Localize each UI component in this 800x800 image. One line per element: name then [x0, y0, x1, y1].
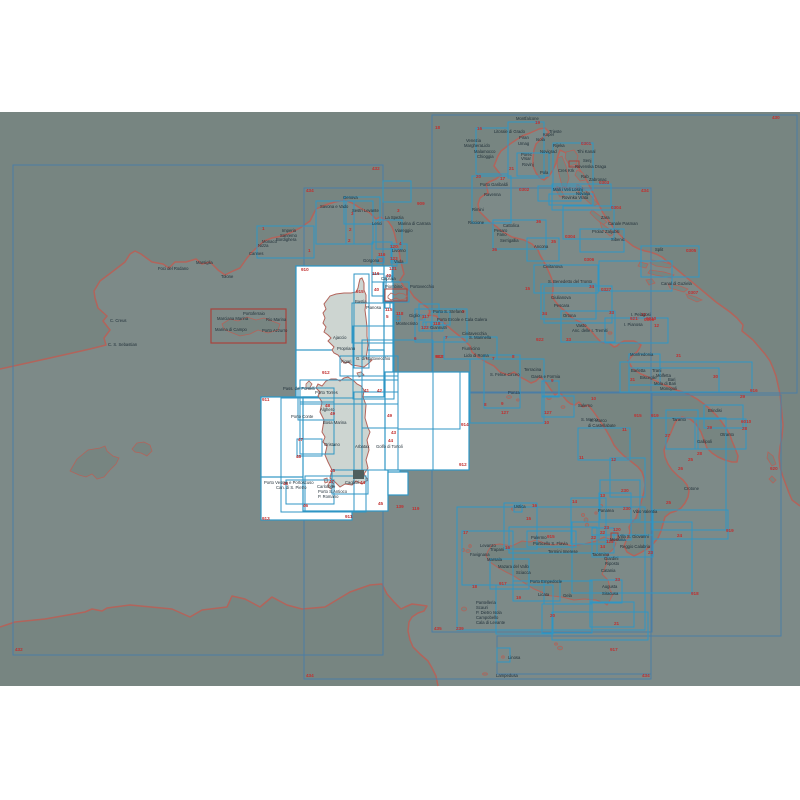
svg-text:432: 432 — [372, 166, 380, 171]
svg-text:Porto S. Stefano: Porto S. Stefano — [433, 309, 464, 314]
svg-text:434: 434 — [641, 188, 649, 193]
svg-text:Ortona: Ortona — [563, 313, 576, 318]
svg-text:Giglio: Giglio — [409, 313, 420, 318]
svg-text:45: 45 — [330, 468, 336, 473]
svg-text:912: 912 — [322, 370, 330, 375]
svg-text:915: 915 — [356, 289, 364, 294]
svg-text:Lampedusa: Lampedusa — [496, 673, 519, 678]
svg-text:11: 11 — [622, 427, 627, 432]
svg-text:17: 17 — [463, 530, 469, 535]
svg-text:42: 42 — [377, 388, 383, 393]
svg-text:Figari: Figari — [341, 359, 352, 364]
svg-text:Riposto: Riposto — [605, 561, 620, 566]
svg-text:Levanzo: Levanzo — [480, 543, 497, 548]
svg-text:911: 911 — [262, 397, 270, 402]
svg-text:Ancona: Ancona — [534, 244, 549, 249]
svg-text:44: 44 — [360, 480, 366, 485]
svg-text:Canal di Guziela: Canal di Guziela — [661, 281, 692, 286]
svg-text:Piombino: Piombino — [385, 284, 403, 289]
svg-text:20: 20 — [476, 174, 482, 179]
svg-text:0305: 0305 — [686, 248, 697, 253]
svg-text:Gallipoli: Gallipoli — [697, 439, 712, 444]
svg-text:Bisceglie: Bisceglie — [640, 375, 657, 380]
svg-text:18: 18 — [472, 584, 478, 589]
svg-text:Novigrad: Novigrad — [540, 149, 557, 154]
svg-text:26: 26 — [678, 466, 684, 471]
svg-text:Genova: Genova — [343, 195, 358, 200]
svg-text:7: 7 — [445, 335, 448, 340]
svg-text:230: 230 — [623, 506, 631, 511]
svg-text:48: 48 — [296, 454, 302, 459]
svg-text:0302: 0302 — [519, 187, 530, 192]
svg-text:913: 913 — [262, 516, 270, 521]
svg-text:0304: 0304 — [565, 234, 576, 239]
svg-text:Giulianova: Giulianova — [551, 295, 571, 300]
svg-text:Marina di Campo: Marina di Campo — [215, 327, 248, 332]
svg-text:Porto Azzurro: Porto Azzurro — [262, 328, 288, 333]
svg-text:20: 20 — [550, 613, 556, 618]
svg-text:Rijeka: Rijeka — [553, 143, 565, 148]
svg-text:0327: 0327 — [601, 287, 612, 292]
svg-text:17: 17 — [500, 176, 506, 181]
svg-text:I. Pelagosi: I. Pelagosi — [631, 312, 651, 317]
svg-text:Porto Torres: Porto Torres — [315, 390, 338, 395]
svg-text:Vada: Vada — [394, 259, 404, 264]
svg-text:Porto Garibaldi: Porto Garibaldi — [480, 182, 508, 187]
svg-text:122: 122 — [421, 325, 429, 330]
svg-text:0301: 0301 — [581, 141, 592, 146]
svg-text:Gorgona: Gorgona — [363, 258, 380, 263]
svg-text:G. di Portovecchio: G. di Portovecchio — [356, 356, 391, 361]
svg-text:27: 27 — [665, 433, 671, 438]
svg-text:Rovinka Vrata: Rovinka Vrata — [562, 195, 589, 200]
svg-text:0304: 0304 — [611, 205, 622, 210]
svg-text:Monfredonia: Monfredonia — [630, 352, 654, 357]
svg-text:Civitanova: Civitanova — [543, 264, 563, 269]
svg-text:916: 916 — [750, 388, 758, 393]
svg-text:Porto Empedocle: Porto Empedocle — [530, 579, 563, 584]
svg-text:Porto Conte: Porto Conte — [291, 414, 314, 419]
svg-text:Palermo: Palermo — [531, 535, 547, 540]
svg-text:Marsala: Marsala — [487, 557, 503, 562]
svg-text:Foci del Rodano: Foci del Rodano — [158, 266, 189, 271]
svg-text:Cannes: Cannes — [249, 251, 263, 256]
svg-text:Bosa Marina: Bosa Marina — [323, 420, 347, 425]
svg-text:127: 127 — [501, 410, 509, 415]
svg-text:Augusta: Augusta — [602, 584, 618, 589]
svg-text:Marghera: Marghera — [464, 143, 483, 148]
svg-text:Messina: Messina — [610, 537, 626, 542]
svg-text:Marsiglia: Marsiglia — [196, 260, 213, 265]
svg-text:31: 31 — [676, 353, 682, 358]
svg-text:Rio Marina: Rio Marina — [266, 317, 287, 322]
svg-text:P. Romano: P. Romano — [318, 494, 339, 499]
svg-text:Licata: Licata — [538, 592, 550, 597]
svg-text:434: 434 — [642, 673, 650, 678]
svg-text:8: 8 — [484, 402, 487, 407]
svg-text:Zabronac: Zabronac — [589, 177, 607, 182]
svg-text:Ajaccio: Ajaccio — [333, 335, 347, 340]
svg-text:435: 435 — [434, 626, 442, 631]
svg-text:116: 116 — [372, 271, 380, 276]
svg-text:Split: Split — [655, 247, 664, 252]
svg-text:115: 115 — [385, 307, 393, 312]
svg-text:18: 18 — [435, 125, 441, 130]
svg-text:28: 28 — [697, 451, 703, 456]
svg-text:Cres: Cres — [558, 168, 567, 173]
svg-text:Pianosa: Pianosa — [366, 305, 382, 310]
svg-text:917: 917 — [499, 581, 507, 586]
svg-text:Rimini: Rimini — [472, 207, 484, 212]
svg-text:Bastia: Bastia — [355, 299, 367, 304]
svg-text:16: 16 — [477, 126, 483, 131]
svg-text:19: 19 — [516, 595, 522, 600]
svg-text:29: 29 — [707, 425, 713, 430]
svg-text:Sestri Levante: Sestri Levante — [352, 208, 379, 213]
svg-text:911: 911 — [345, 514, 353, 519]
svg-text:Fano: Fano — [497, 232, 507, 237]
svg-text:Cala di Levante: Cala di Levante — [476, 620, 506, 625]
svg-text:230: 230 — [621, 488, 629, 493]
svg-text:21: 21 — [509, 166, 515, 171]
svg-text:31: 31 — [630, 377, 636, 382]
svg-text:24: 24 — [677, 533, 683, 538]
svg-text:S. Marinella: S. Marinella — [469, 335, 492, 340]
svg-text:915: 915 — [547, 534, 555, 539]
svg-text:Tolone: Tolone — [221, 274, 234, 279]
svg-text:Rovenska Draga: Rovenska Draga — [575, 164, 607, 169]
svg-text:Senj: Senj — [583, 158, 591, 163]
svg-text:16: 16 — [505, 545, 511, 550]
svg-text:Fiumicino: Fiumicino — [462, 346, 481, 351]
svg-text:918: 918 — [691, 591, 699, 596]
svg-text:S. Benedetto del Tronto: S. Benedetto del Tronto — [548, 279, 593, 284]
svg-text:Pola: Pola — [540, 170, 549, 175]
svg-text:116: 116 — [378, 252, 386, 257]
svg-text:915: 915 — [634, 413, 642, 418]
svg-text:21: 21 — [614, 621, 620, 626]
svg-text:12: 12 — [611, 457, 617, 462]
svg-text:Catania: Catania — [601, 568, 616, 573]
svg-text:Portovecchio: Portovecchio — [410, 284, 435, 289]
svg-text:Litorale di Grado: Litorale di Grado — [494, 129, 526, 134]
svg-text:Livorno: Livorno — [392, 248, 406, 253]
svg-text:36: 36 — [492, 247, 498, 252]
svg-text:Lerici: Lerici — [372, 221, 382, 226]
svg-text:La Spezia: La Spezia — [385, 215, 404, 220]
svg-text:909: 909 — [417, 201, 425, 206]
svg-text:0307: 0307 — [688, 290, 699, 295]
svg-text:16: 16 — [532, 503, 538, 508]
svg-text:Riccione: Riccione — [468, 220, 485, 225]
svg-text:127: 127 — [544, 410, 552, 415]
svg-text:33: 33 — [566, 337, 572, 342]
svg-text:Marciana Marina: Marciana Marina — [217, 316, 249, 321]
svg-text:434: 434 — [306, 673, 314, 678]
svg-text:28: 28 — [742, 426, 748, 431]
svg-text:40: 40 — [374, 287, 380, 292]
svg-text:34: 34 — [589, 284, 595, 289]
svg-text:Montfalcone: Montfalcone — [516, 116, 539, 121]
svg-text:Cagliari: Cagliari — [345, 480, 359, 485]
svg-text:Lido: Lido — [482, 143, 491, 148]
svg-text:Siracusa: Siracusa — [602, 591, 619, 596]
svg-text:Canale Pasman: Canale Pasman — [608, 221, 638, 226]
svg-text:434: 434 — [306, 188, 314, 193]
svg-text:118: 118 — [396, 311, 404, 316]
svg-text:1: 1 — [308, 248, 311, 253]
svg-text:139: 139 — [396, 504, 404, 509]
svg-text:Marina di Carrara: Marina di Carrara — [398, 221, 431, 226]
svg-text:46: 46 — [303, 503, 309, 508]
svg-text:Otranto: Otranto — [720, 432, 735, 437]
svg-text:10: 10 — [591, 396, 597, 401]
svg-text:Porto Ercole e Cala Galera: Porto Ercole e Cala Galera — [437, 317, 488, 322]
svg-text:Arbatax: Arbatax — [355, 444, 370, 449]
svg-text:2: 2 — [348, 238, 351, 243]
svg-text:S. Marco: S. Marco — [581, 417, 598, 422]
svg-text:Capraia: Capraia — [381, 276, 396, 281]
svg-text:49: 49 — [387, 413, 393, 418]
svg-text:Taranto: Taranto — [672, 417, 687, 422]
svg-text:C. Creus: C. Creus — [110, 318, 127, 323]
svg-text:Pescara: Pescara — [554, 303, 570, 308]
svg-text:43: 43 — [391, 430, 397, 435]
svg-text:Terracina: Terracina — [524, 367, 542, 372]
svg-text:6010: 6010 — [741, 419, 752, 424]
svg-text:Sibenic: Sibenic — [611, 237, 625, 242]
svg-text:Salerno: Salerno — [578, 403, 593, 408]
svg-text:0306: 0306 — [584, 257, 595, 262]
svg-text:Can. di S. Pietro: Can. di S. Pietro — [276, 485, 307, 490]
svg-text:Umag: Umag — [518, 141, 530, 146]
svg-text:Panarea: Panarea — [598, 508, 615, 513]
svg-text:Mazara del Vallo: Mazara del Vallo — [498, 564, 530, 569]
svg-text:Barletta: Barletta — [631, 368, 646, 373]
svg-text:29: 29 — [740, 394, 746, 399]
svg-text:Vrsar: Vrsar — [521, 156, 531, 161]
svg-text:7: 7 — [492, 356, 495, 361]
svg-text:920: 920 — [770, 466, 778, 471]
svg-text:25: 25 — [688, 457, 694, 462]
svg-text:5: 5 — [386, 314, 389, 319]
svg-text:45: 45 — [378, 501, 384, 506]
svg-text:Piran: Piran — [519, 135, 529, 140]
svg-text:Gaeta e Formia: Gaeta e Formia — [531, 374, 561, 379]
svg-text:Oristano: Oristano — [324, 442, 340, 447]
svg-text:912: 912 — [459, 462, 467, 467]
svg-text:14: 14 — [600, 544, 606, 549]
svg-text:Ustica: Ustica — [514, 504, 526, 509]
svg-text:117: 117 — [422, 314, 430, 319]
svg-text:914: 914 — [461, 422, 469, 427]
svg-text:Serrigallia: Serrigallia — [500, 238, 519, 243]
svg-text:Ravenna: Ravenna — [484, 192, 501, 197]
svg-text:Linosa: Linosa — [508, 655, 521, 660]
svg-text:33: 33 — [609, 310, 615, 315]
svg-text:30: 30 — [713, 374, 719, 379]
svg-text:Rovinj: Rovinj — [522, 162, 534, 167]
svg-text:Anc. delle I. Tremiti: Anc. delle I. Tremiti — [572, 328, 608, 333]
svg-text:Sciacca: Sciacca — [516, 570, 531, 575]
svg-text:47: 47 — [298, 437, 304, 442]
svg-text:Isola: Isola — [536, 137, 546, 142]
svg-text:Savona e Vado: Savona e Vado — [320, 204, 349, 209]
svg-text:919: 919 — [726, 528, 734, 533]
svg-text:Prolaz Zaljubiti: Prolaz Zaljubiti — [592, 229, 620, 234]
svg-text:917: 917 — [610, 647, 618, 652]
svg-text:6: 6 — [414, 336, 417, 341]
svg-text:33: 33 — [615, 577, 621, 582]
svg-text:di Castellabate: di Castellabate — [588, 423, 616, 428]
svg-text:Gela: Gela — [563, 593, 573, 598]
svg-text:15: 15 — [526, 516, 532, 521]
svg-text:44: 44 — [388, 438, 394, 443]
svg-text:Ponza: Ponza — [508, 390, 521, 395]
svg-text:34: 34 — [542, 311, 548, 316]
svg-text:Viareggio: Viareggio — [395, 228, 413, 233]
svg-text:13: 13 — [600, 493, 606, 498]
svg-text:Lido di Roma: Lido di Roma — [464, 353, 489, 358]
svg-text:121: 121 — [389, 266, 397, 271]
svg-text:23: 23 — [648, 550, 654, 555]
svg-text:9: 9 — [501, 401, 504, 406]
svg-text:1: 1 — [262, 226, 265, 231]
svg-text:432: 432 — [15, 647, 23, 652]
svg-text:22: 22 — [591, 535, 597, 540]
svg-text:Nizza: Nizza — [258, 243, 269, 248]
svg-text:12: 12 — [654, 323, 660, 328]
svg-text:2: 2 — [349, 227, 352, 232]
svg-text:239: 239 — [456, 626, 464, 631]
svg-text:Propriano: Propriano — [337, 346, 356, 351]
svg-text:I. Pianosa: I. Pianosa — [624, 322, 643, 327]
svg-text:119: 119 — [412, 506, 420, 511]
svg-text:41: 41 — [364, 388, 370, 393]
svg-text:Brindisi: Brindisi — [708, 408, 722, 413]
svg-text:Giannutri: Giannutri — [430, 325, 447, 330]
svg-text:8: 8 — [512, 354, 515, 359]
svg-text:22: 22 — [600, 530, 606, 535]
svg-text:Reggio Calabria: Reggio Calabria — [620, 544, 651, 549]
svg-text:3: 3 — [397, 208, 400, 213]
svg-text:910: 910 — [301, 267, 309, 272]
svg-text:Chioggia: Chioggia — [477, 154, 494, 159]
svg-text:S. Felice Circeo: S. Felice Circeo — [490, 372, 520, 377]
svg-text:430: 430 — [772, 115, 780, 120]
svg-text:10: 10 — [544, 420, 550, 425]
svg-text:Termini Imerese: Termini Imerese — [548, 549, 578, 554]
svg-text:919: 919 — [651, 413, 659, 418]
svg-text:912: 912 — [436, 354, 444, 359]
svg-text:Zara: Zara — [601, 215, 610, 220]
svg-text:Golfo di Tortoli: Golfo di Tortoli — [376, 444, 403, 449]
svg-text:Tihi Kanal: Tihi Kanal — [577, 149, 596, 154]
svg-text:15: 15 — [525, 286, 531, 291]
svg-text:Bordighera: Bordighera — [276, 237, 297, 242]
svg-text:14: 14 — [572, 499, 578, 504]
svg-text:35: 35 — [551, 239, 557, 244]
svg-text:Pass. dei Fornelli: Pass. dei Fornelli — [283, 386, 315, 391]
svg-text:120: 120 — [613, 527, 621, 532]
svg-text:Crotone: Crotone — [684, 486, 700, 491]
svg-text:Montecristo: Montecristo — [396, 321, 418, 326]
svg-text:Monopoli: Monopoli — [660, 386, 677, 391]
svg-text:25: 25 — [666, 500, 672, 505]
svg-text:C. S. Sebastian: C. S. Sebastian — [108, 342, 138, 347]
svg-text:4: 4 — [399, 241, 402, 246]
svg-text:36: 36 — [536, 219, 542, 224]
svg-text:Porticello S. Flavia: Porticello S. Flavia — [533, 541, 568, 546]
svg-text:11: 11 — [579, 455, 584, 460]
svg-text:922: 922 — [536, 337, 544, 342]
svg-text:Vibo Valentia: Vibo Valentia — [633, 509, 658, 514]
svg-text:Alghero: Alghero — [320, 407, 335, 412]
